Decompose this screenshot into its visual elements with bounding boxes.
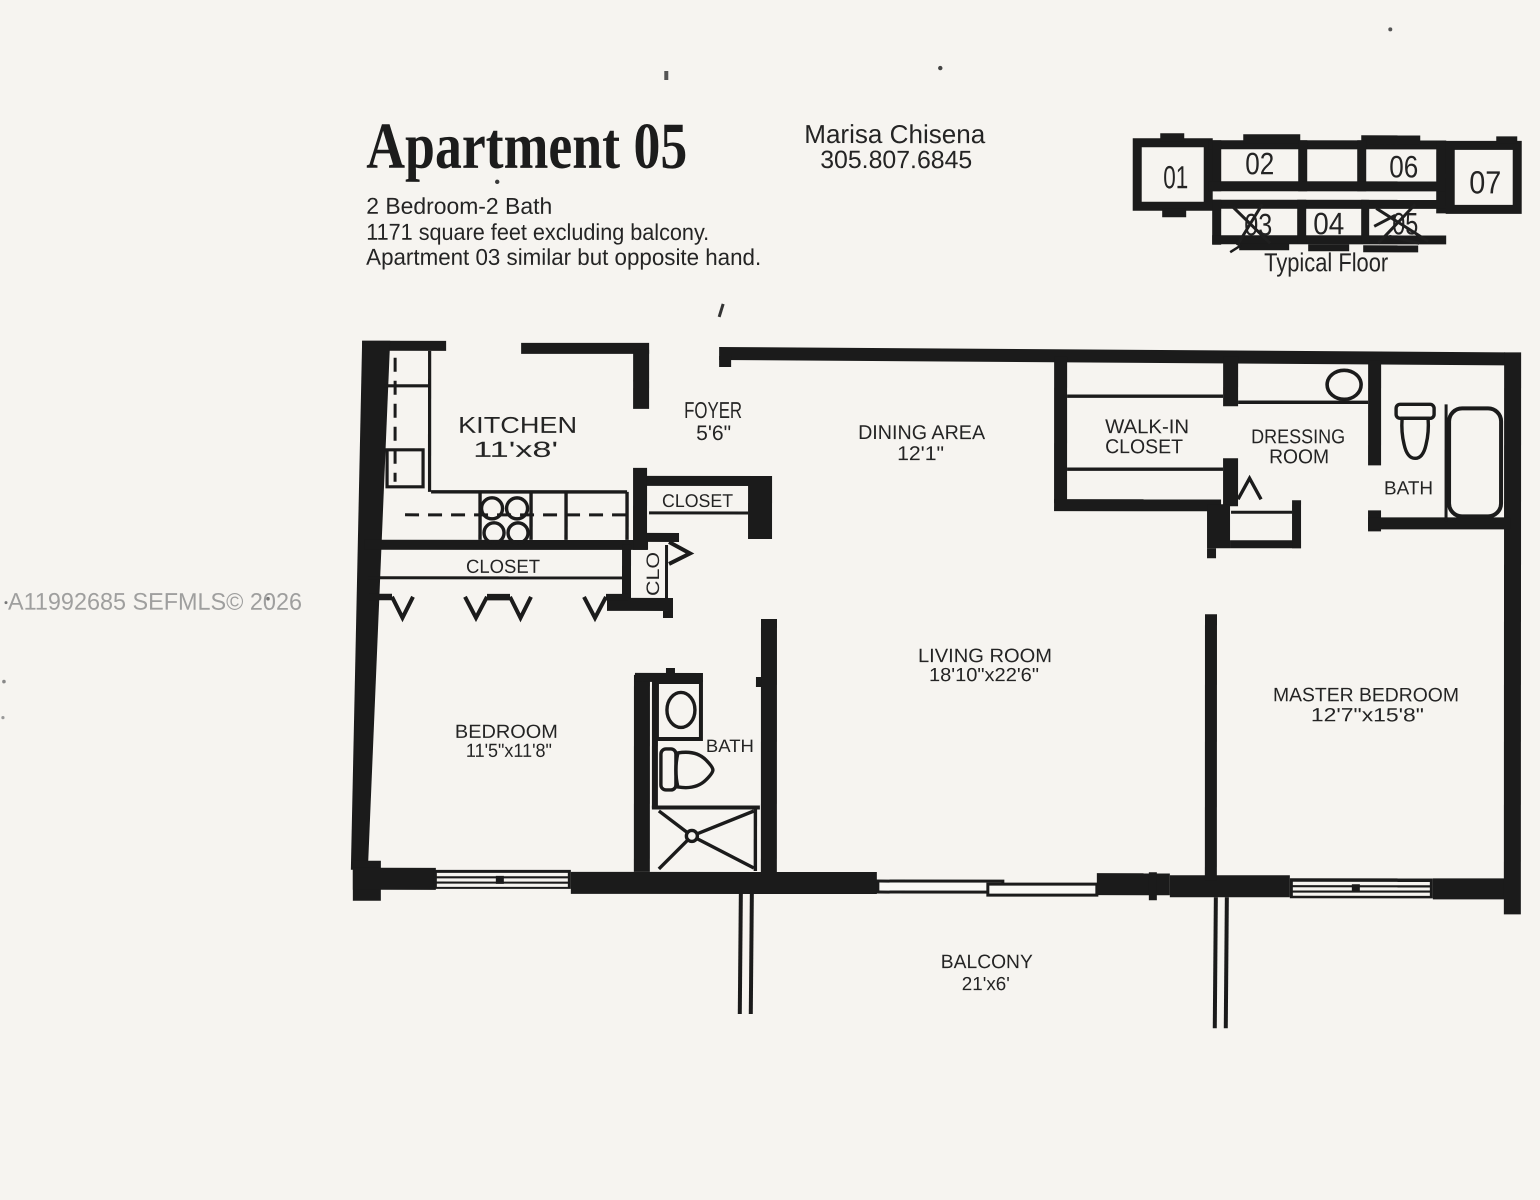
svg-text:BALCONY: BALCONY — [941, 951, 1033, 973]
svg-text:02: 02 — [1245, 146, 1274, 181]
svg-text:FOYER: FOYER — [684, 397, 742, 423]
svg-text:305.807.6845: 305.807.6845 — [820, 146, 972, 174]
svg-text:18'10"x22'6": 18'10"x22'6" — [929, 665, 1039, 686]
svg-text:2 Bedroom-2 Bath: 2 Bedroom-2 Bath — [366, 193, 552, 219]
svg-text:12'7"x15'8": 12'7"x15'8" — [1311, 705, 1424, 726]
svg-text:12'1": 12'1" — [897, 443, 944, 465]
svg-text:DINING AREA: DINING AREA — [858, 422, 986, 444]
svg-text:KITCHEN: KITCHEN — [458, 412, 577, 438]
svg-text:04: 04 — [1313, 206, 1344, 241]
svg-text:07: 07 — [1469, 164, 1501, 200]
svg-text:LIVING ROOM: LIVING ROOM — [918, 645, 1052, 667]
svg-text:CLOSET: CLOSET — [466, 557, 540, 578]
svg-text:11'x8': 11'x8' — [473, 437, 558, 462]
svg-text:BEDROOM: BEDROOM — [455, 722, 558, 743]
svg-text:5'6": 5'6" — [696, 422, 731, 445]
svg-text:06: 06 — [1389, 149, 1418, 184]
svg-text:Marisa Chisena: Marisa Chisena — [804, 119, 986, 149]
svg-text:1171 square feet excluding bal: 1171 square feet excluding balcony. — [366, 219, 709, 245]
svg-text:MASTER BEDROOM: MASTER BEDROOM — [1273, 684, 1459, 706]
svg-text:21'x6': 21'x6' — [962, 974, 1010, 995]
svg-text:DRESSING: DRESSING — [1251, 426, 1345, 448]
svg-text:Apartment 03 similar but oppos: Apartment 03 similar but opposite hand. — [366, 244, 761, 270]
svg-text:A11992685 SEFMLS© 2026: A11992685 SEFMLS© 2026 — [8, 589, 302, 616]
svg-text:CLOSET: CLOSET — [1105, 436, 1183, 458]
svg-text:BATH: BATH — [1384, 478, 1433, 499]
svg-text:11'5"x11'8": 11'5"x11'8" — [466, 741, 552, 762]
svg-text:BATH: BATH — [706, 736, 754, 756]
svg-text:WALK-IN: WALK-IN — [1105, 416, 1189, 438]
svg-text:Typical Floor: Typical Floor — [1264, 247, 1388, 277]
svg-text:CLO: CLO — [643, 552, 663, 596]
svg-text:Apartment 05: Apartment 05 — [366, 110, 687, 183]
svg-text:ROOM: ROOM — [1269, 446, 1329, 468]
svg-text:CLOSET: CLOSET — [662, 490, 733, 511]
svg-text:01: 01 — [1163, 159, 1188, 195]
